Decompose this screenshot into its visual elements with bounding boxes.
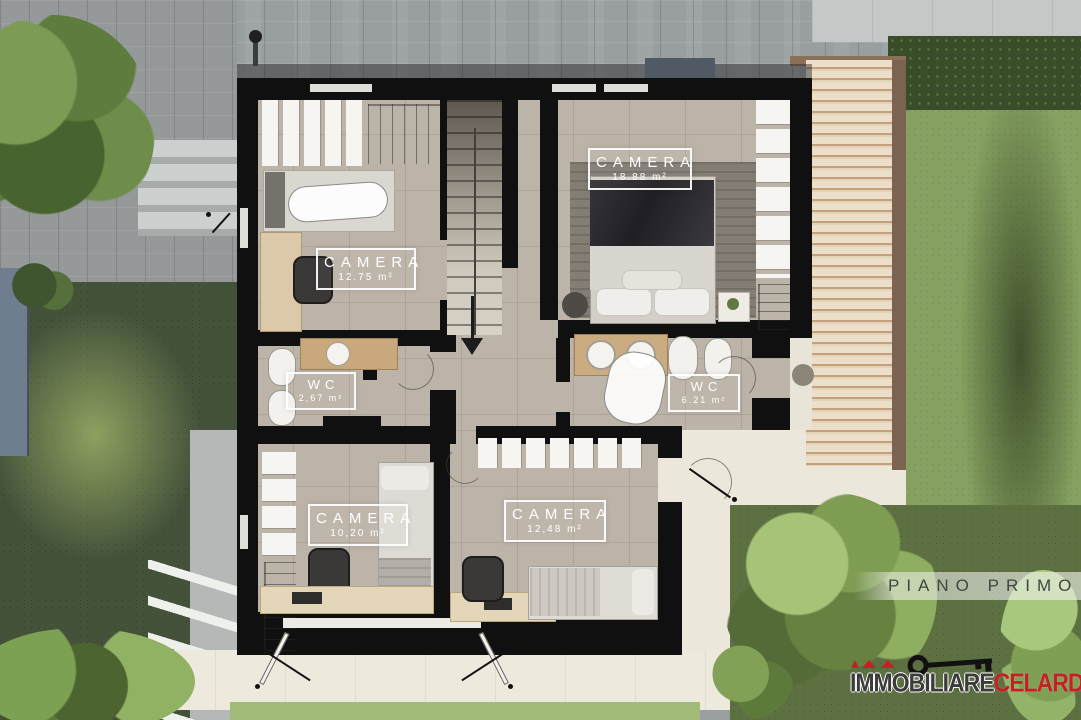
window-opening (552, 84, 596, 92)
room-name: CAMERA (318, 250, 414, 271)
washbasin (326, 342, 350, 366)
dimension-dot (508, 684, 513, 689)
hanger-rack-sketch (758, 284, 790, 330)
room-label-wc-small: WC 2,67 m² (286, 372, 356, 410)
room-label-wc-large: WC 6.21 m² (668, 374, 740, 412)
wardrobe (262, 100, 362, 166)
interior-wall (658, 444, 682, 458)
hanger-rack-sketch (368, 104, 440, 164)
partition-wall (323, 416, 381, 428)
interior-wall (237, 426, 444, 444)
chimney (249, 30, 262, 43)
window-opening (240, 208, 248, 248)
interior-wall (556, 412, 570, 428)
house-roof-icon (862, 660, 876, 668)
room-name: WC (670, 376, 738, 394)
exterior-wall (752, 398, 790, 430)
blanket (530, 568, 600, 616)
floor-title-band: PIANO PRIMO (854, 572, 1081, 600)
window-opening (240, 515, 248, 549)
bush (8, 262, 74, 314)
wall-shadow (237, 64, 812, 78)
stair-direction-line (471, 296, 474, 338)
room-label-camera-ne: CAMERA 18.88 m² (588, 148, 692, 190)
room-name: CAMERA (506, 502, 604, 523)
room-label-camera-sw: CAMERA 10,20 m² (308, 504, 408, 546)
lawn-sunlight-patch (0, 310, 200, 560)
interior-wall (658, 502, 682, 655)
pillow (632, 569, 654, 615)
interior-wall (502, 100, 518, 268)
pillow (265, 172, 285, 228)
laptop (292, 592, 322, 604)
office-chair (462, 556, 504, 602)
person-sketch (287, 181, 389, 224)
pergola-beam (892, 60, 906, 470)
chimney-pipe (253, 40, 258, 66)
plant (727, 298, 739, 310)
exterior-wall (790, 78, 812, 336)
dimension-dot (732, 497, 737, 502)
room-area: 2,67 m² (288, 392, 354, 408)
duvet (590, 180, 714, 248)
house-roof-icon (881, 660, 895, 668)
pillow (381, 466, 429, 490)
house-roof-icon (851, 660, 859, 668)
window-opening (604, 84, 648, 92)
hedge (888, 36, 1081, 110)
desk (260, 586, 434, 614)
room-name: CAMERA (590, 150, 690, 171)
interior-wall (430, 390, 456, 444)
room-label-camera-s: CAMERA 12,48 m² (504, 500, 606, 542)
brand-watermark: IMMOBILIARECELARDO (848, 644, 1081, 716)
nightstand (562, 292, 588, 318)
pillow (654, 288, 710, 316)
pergola-roof (806, 60, 894, 466)
brand-text-immobiliare: IMMOBILIARE (850, 668, 994, 697)
room-area: 12.75 m² (318, 271, 414, 288)
floor-title: PIANO PRIMO (888, 576, 1078, 595)
room-area: 6.21 m² (670, 394, 738, 410)
lawn (230, 702, 700, 720)
wardrobe (478, 438, 646, 468)
pillow (596, 288, 652, 316)
interior-wall (430, 346, 456, 352)
floor-plan-render: CAMERA 12.75 m² CAMERA 18.88 m² WC 2,67 … (0, 0, 1081, 720)
room-name: CAMERA (310, 506, 406, 527)
stair-handrail (474, 128, 476, 335)
bush (698, 636, 793, 720)
brand-text-celardo: CELARDO (994, 668, 1081, 697)
stair-direction-arrow (461, 338, 483, 355)
wardrobe (756, 100, 790, 278)
room-area: 12,48 m² (506, 523, 604, 540)
room-area: 18.88 m² (590, 171, 690, 188)
interior-wall (540, 78, 558, 320)
dimension-dot (255, 684, 260, 689)
exterior-wall (237, 78, 258, 655)
bath-mat (792, 364, 814, 386)
room-area: 10,20 m² (310, 527, 406, 544)
door-swing-arc (446, 446, 484, 484)
window-opening (310, 84, 372, 92)
dimension-dot (206, 212, 211, 217)
interior-wall (556, 338, 570, 382)
door-swing-arc (392, 348, 434, 390)
door-opening (658, 458, 682, 502)
wardrobe (262, 452, 296, 556)
room-label-camera-nw: CAMERA 12.75 m² (316, 248, 416, 290)
room-name: WC (288, 374, 354, 392)
brand-text: IMMOBILIARECELARDO (850, 668, 1081, 698)
pillow (622, 270, 682, 290)
